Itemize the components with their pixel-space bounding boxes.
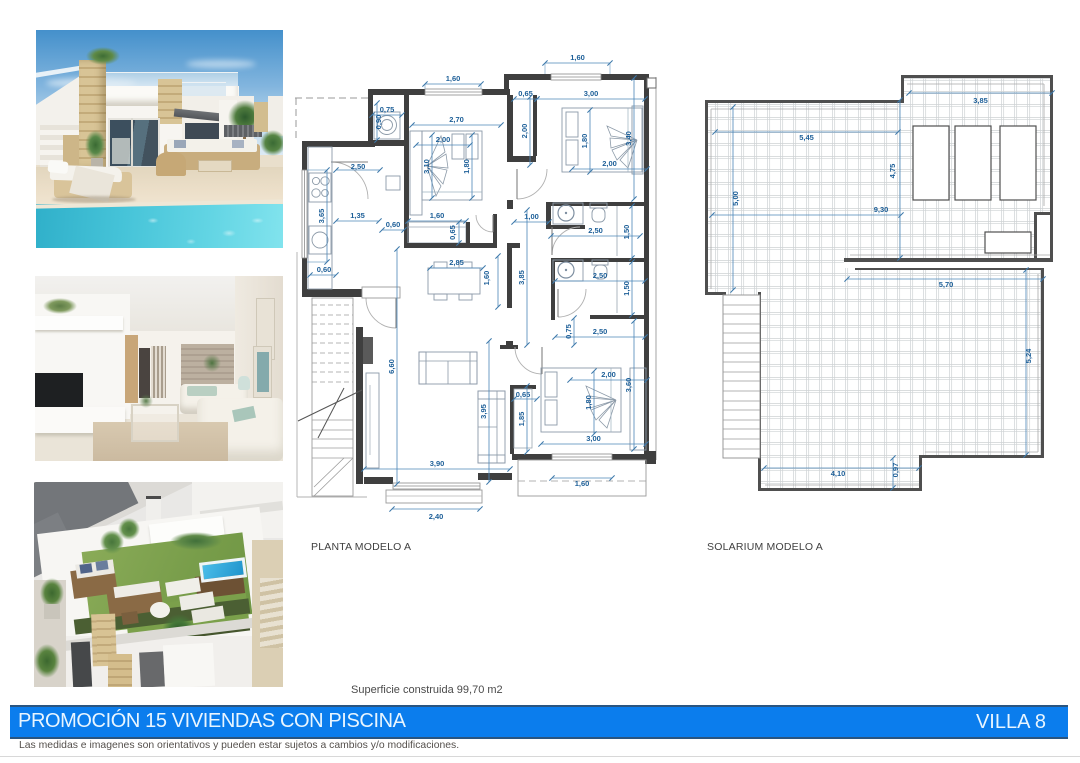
svg-text:3,60: 3,60 xyxy=(624,378,633,393)
svg-text:0,90: 0,90 xyxy=(374,115,383,130)
svg-text:0,65: 0,65 xyxy=(448,225,457,240)
svg-text:1,60: 1,60 xyxy=(482,271,491,286)
svg-text:1,80: 1,80 xyxy=(580,134,589,149)
svg-text:1,60: 1,60 xyxy=(446,74,461,83)
svg-text:2,00: 2,00 xyxy=(436,135,451,144)
svg-text:2,00: 2,00 xyxy=(602,159,617,168)
svg-text:3,00: 3,00 xyxy=(584,89,599,98)
svg-text:1,60: 1,60 xyxy=(570,53,585,62)
svg-text:5,24: 5,24 xyxy=(1024,348,1033,363)
svg-text:1,60: 1,60 xyxy=(575,479,590,488)
svg-text:0,65: 0,65 xyxy=(516,390,531,399)
svg-text:2,00: 2,00 xyxy=(601,370,616,379)
svg-text:3,40: 3,40 xyxy=(624,131,633,146)
svg-text:1,00: 1,00 xyxy=(524,212,539,221)
svg-text:3,85: 3,85 xyxy=(517,270,526,285)
svg-text:1,60: 1,60 xyxy=(430,211,445,220)
svg-text:2,85: 2,85 xyxy=(449,258,464,267)
svg-text:3,00: 3,00 xyxy=(586,434,601,443)
svg-text:5,45: 5,45 xyxy=(799,133,814,142)
svg-text:3,85: 3,85 xyxy=(973,96,988,105)
svg-text:3,10: 3,10 xyxy=(422,159,431,174)
svg-text:1,80: 1,80 xyxy=(584,395,593,410)
svg-text:0,97: 0,97 xyxy=(891,463,900,478)
svg-text:9,30: 9,30 xyxy=(874,205,889,214)
svg-text:2,40: 2,40 xyxy=(429,512,444,521)
svg-text:2,50: 2,50 xyxy=(593,271,608,280)
svg-text:3,65: 3,65 xyxy=(317,209,326,224)
svg-text:2,50: 2,50 xyxy=(588,226,603,235)
svg-text:1,80: 1,80 xyxy=(462,159,471,174)
svg-text:6,60: 6,60 xyxy=(387,359,396,374)
svg-text:2,00: 2,00 xyxy=(520,124,529,139)
svg-text:2,50: 2,50 xyxy=(351,162,366,171)
svg-text:4,10: 4,10 xyxy=(831,469,846,478)
svg-text:1,35: 1,35 xyxy=(350,211,365,220)
svg-text:3,95: 3,95 xyxy=(479,404,488,419)
svg-text:3,90: 3,90 xyxy=(430,459,445,468)
svg-text:1,85: 1,85 xyxy=(517,412,526,427)
svg-text:1,50: 1,50 xyxy=(622,225,631,240)
svg-text:0,60: 0,60 xyxy=(386,220,401,229)
svg-text:0,60: 0,60 xyxy=(317,265,332,274)
svg-text:5,00: 5,00 xyxy=(731,191,740,206)
svg-text:2,50: 2,50 xyxy=(593,327,608,336)
svg-text:0,75: 0,75 xyxy=(564,324,573,339)
svg-text:5,70: 5,70 xyxy=(939,280,954,289)
svg-text:1,50: 1,50 xyxy=(622,281,631,296)
svg-text:4,75: 4,75 xyxy=(888,164,897,179)
svg-text:2,70: 2,70 xyxy=(449,115,464,124)
svg-text:0,75: 0,75 xyxy=(380,105,395,114)
